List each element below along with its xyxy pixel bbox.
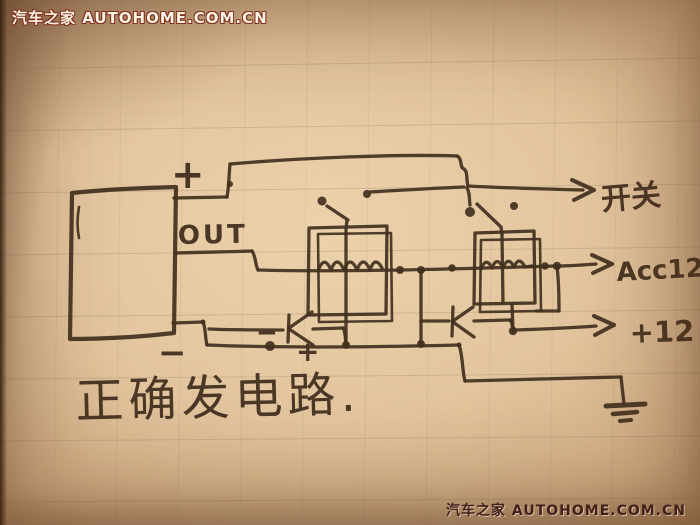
watermark-top-left: 汽车之家 AUTOHOME.COM.CN — [12, 7, 268, 28]
relay-1-switch — [318, 190, 372, 229]
circuit-diagram: + OUT − 开关 Acc12 +12 − + 正确发电路. — [0, 0, 700, 525]
switch-output-label: 开关 — [600, 178, 663, 218]
acc-output-label: Acc12 — [616, 253, 700, 288]
ground-wire-and-symbol — [457, 343, 646, 422]
diode-2 — [452, 307, 474, 337]
caption-text: 正确发电路. — [75, 367, 362, 430]
photo-of-hand-drawn-circuit: + OUT − 开关 Acc12 +12 − + 正确发电路. 汽车之家 AUT… — [0, 0, 700, 525]
power-output-label: +12 — [629, 314, 695, 350]
diode-1-minus-label: − — [256, 318, 278, 348]
out-terminal-label: OUT — [178, 220, 248, 251]
diode-1-plus-label: + — [296, 335, 319, 368]
watermark-bottom-right: 汽车之家 AUTOHOME.COM.CN — [446, 500, 686, 520]
top-rail-wires — [174, 155, 583, 205]
relay-2 — [474, 231, 541, 312]
relay-1 — [308, 226, 392, 322]
positive-terminal-label: + — [171, 152, 205, 198]
negative-terminal-label: − — [158, 333, 187, 373]
